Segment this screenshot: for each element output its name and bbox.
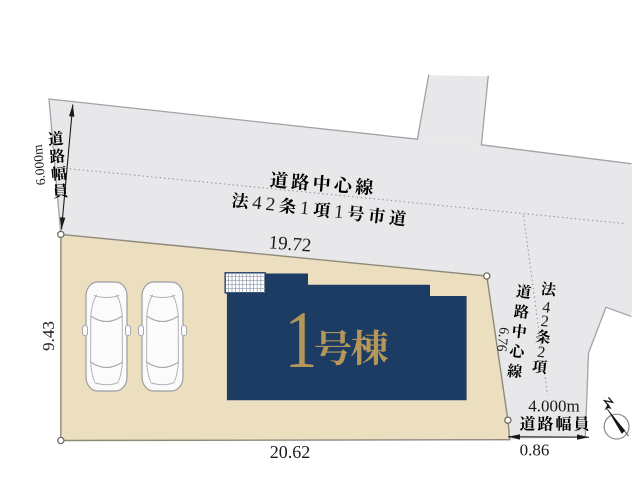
svg-text:1: 1 bbox=[285, 295, 318, 386]
svg-text:20.62: 20.62 bbox=[270, 442, 311, 462]
svg-text:9.43: 9.43 bbox=[39, 321, 58, 351]
svg-text:0.86: 0.86 bbox=[520, 441, 550, 460]
svg-text:19.72: 19.72 bbox=[268, 232, 312, 256]
svg-text:4.000m: 4.000m bbox=[528, 397, 579, 416]
svg-text:6.76: 6.76 bbox=[493, 326, 511, 352]
